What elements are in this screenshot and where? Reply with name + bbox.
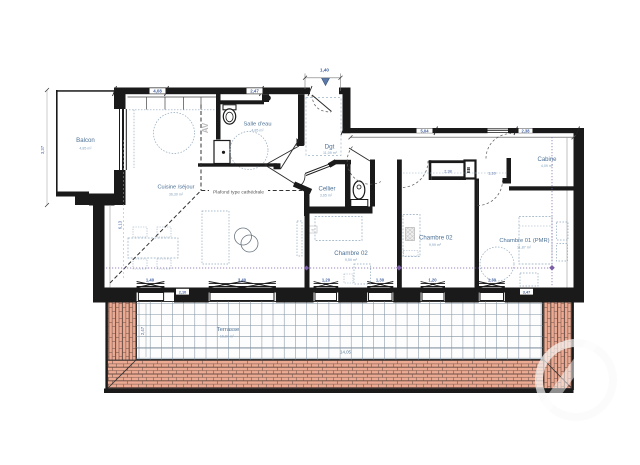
svg-text:4,85 m²: 4,85 m² [251,129,264,133]
svg-text:Chambre 02: Chambre 02 [419,235,453,242]
svg-text:9,99 m²: 9,99 m² [429,243,442,247]
svg-text:3,47: 3,47 [523,290,530,294]
svg-text:1,20: 1,20 [322,278,331,283]
svg-text:11,09 m²: 11,09 m² [323,151,338,155]
svg-text:16,87 m²: 16,87 m² [220,335,235,339]
svg-text:11,87 m²: 11,87 m² [517,246,532,250]
svg-text:1,40: 1,40 [146,278,155,283]
svg-text:Cuisine /séjour: Cuisine /séjour [158,185,195,191]
svg-text:Cellier: Cellier [318,187,335,193]
svg-text:1,40: 1,40 [320,68,329,73]
svg-text:3,37: 3,37 [40,145,45,154]
svg-text:2,38: 2,38 [522,129,531,134]
svg-text:1,20: 1,20 [428,278,437,283]
svg-text:9,59 m²: 9,59 m² [345,258,358,262]
svg-text:1,10: 1,10 [488,171,497,176]
svg-text:4,08: 4,08 [153,89,162,94]
svg-text:TI: TI [311,228,315,233]
svg-text:Chambre 02: Chambre 02 [334,250,368,257]
svg-text:Chambre 01 (PMR): Chambre 01 (PMR) [499,238,549,244]
svg-text:Balcon: Balcon [76,137,95,144]
svg-text:2,38: 2,38 [444,170,451,174]
svg-text:36,30 m²: 36,30 m² [169,193,184,197]
svg-text:Terrasse: Terrasse [217,327,240,333]
svg-text:1,30: 1,30 [376,278,385,283]
svg-text:3,40: 3,40 [238,278,247,283]
svg-text:5,04: 5,04 [421,129,430,134]
svg-text:2,47: 2,47 [140,326,145,335]
svg-text:4,85 m²: 4,85 m² [79,147,92,151]
svg-text:2,47: 2,47 [250,89,259,94]
svg-text:6,13: 6,13 [118,220,123,229]
svg-text:Cabine: Cabine [537,157,557,163]
svg-text:1,30: 1,30 [488,278,497,283]
svg-text:EB: EB [466,166,471,173]
svg-text:3,65 m²: 3,65 m² [320,194,333,198]
svg-text:14,05: 14,05 [340,350,352,355]
svg-text:Salle d'eau: Salle d'eau [244,122,272,128]
svg-text:2,10: 2,10 [179,290,186,294]
svg-text:AV: AV [201,122,210,133]
svg-text:Dgt: Dgt [325,144,335,151]
svg-text:Plafond type cathédrale: Plafond type cathédrale [213,189,264,195]
